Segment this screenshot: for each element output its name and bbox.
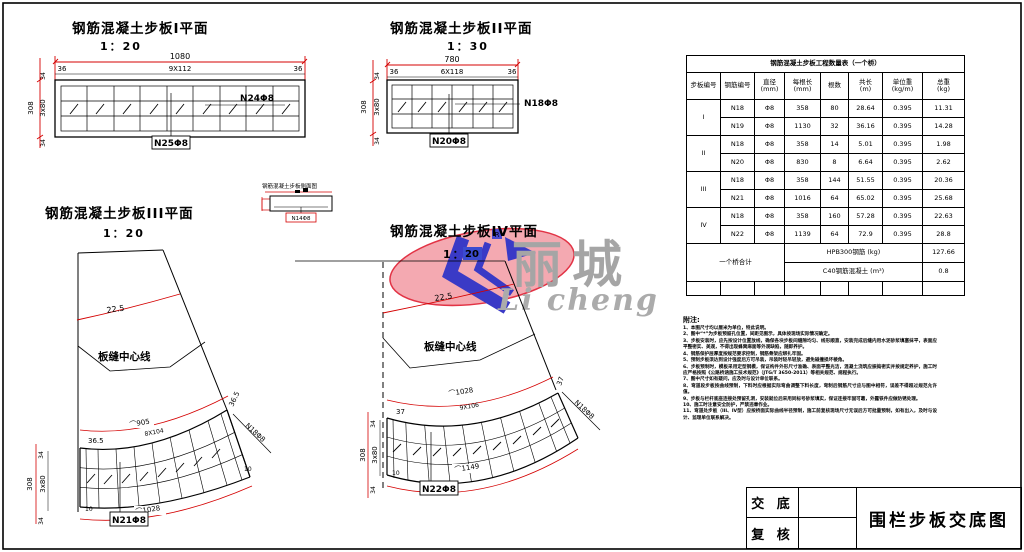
table-row: IV N18Φ8 358160 57.280.395 22.63 (687, 208, 965, 226)
plan4-title: 钢筋混凝土步板IV平面 (390, 223, 538, 240)
logo-name-en: Li cheng (497, 283, 659, 318)
plan3-edge-bottom: 34 (38, 517, 45, 525)
plan2-scale: 1：30 (447, 40, 489, 53)
plan3-fan-outline (78, 250, 250, 512)
drawing-sheet: R 丽城 Li cheng 钢筋混凝土步板I平面 1：20 1080 36 9X… (0, 0, 1024, 552)
note-item: 11、弯道处步板（III、IV型）应按桥面实际曲线半径预制，施工前复核现场尺寸无… (683, 409, 937, 422)
field-jiaodi-value (799, 488, 857, 518)
note-item: 3、步板安装时，应先按设计位置放线，确保各块步板间缝隙均匀、线形顺直，安装完成后… (683, 339, 937, 352)
plan3-angle: 22.5 (106, 304, 125, 315)
field-fuhe-label: 复 核 (747, 518, 799, 548)
plan4-bar-label-right: N18Φ8 (573, 399, 596, 421)
plan3-bar-label-right: N18Φ8 (244, 422, 267, 444)
table-title: 钢筋混凝土步板工程数量表（一个桥） (687, 56, 965, 73)
table-row: N21Φ8 101664 65.020.395 25.68 (687, 190, 965, 208)
table-summary-row: 一个桥合计 HPB300钢筋 (kg) 127.66 (687, 244, 965, 263)
plan2-edge-bottom: 34 (374, 137, 381, 145)
title-block: 交 底 围栏步板交底图 复 核 (746, 487, 1022, 549)
plan1-rows-dim: 3x80 (39, 99, 47, 117)
table-row: I N18Φ8 35880 28.640.395 11.31 (687, 100, 965, 118)
plan4-margin-left: 37 (396, 408, 405, 416)
plan2-spacing: 6X118 (441, 68, 464, 76)
plan2-edge-top: 34 (374, 72, 381, 80)
plan3-edge-left: 10 (85, 506, 93, 513)
plan3-margin-left: 36.5 (88, 437, 104, 445)
plan4-edge-bottom: 34 (370, 486, 377, 494)
plan4-spacing-dim: 9X106 (459, 402, 479, 412)
plan2: 钢筋混凝土步板II平面 1：30 780 36 6X118 36 308 3x8… (360, 20, 558, 147)
plan1-spacing: 9X112 (169, 65, 192, 73)
plan3-height-dim: 308 (26, 477, 34, 490)
plan3: 钢筋混凝土步板III平面 1：20 22.5 板缝中心线 (26, 205, 271, 526)
quantity-table: 钢筋混凝土步板工程数量表（一个桥） 步板编号 钢筋编号 直径(mm) 每根长(m… (686, 55, 965, 296)
plan1-edge-top: 34 (40, 72, 47, 80)
table-header-row: 步板编号 钢筋编号 直径(mm) 每根长(mm) 根数 共长(m) 单位重(kg… (687, 73, 965, 100)
plan3-rows-dim: 3x80 (39, 475, 47, 493)
table-empty-row (687, 282, 965, 296)
table-row: II N18Φ8 35814 5.010.395 1.98 (687, 136, 965, 154)
plan4-scale-value: 20 (465, 249, 479, 260)
plan4-rows-dim: 3x80 (371, 446, 379, 464)
plan4-seam-label: 板缝中心线 (424, 340, 477, 353)
table-row: N19Φ8 113032 36.160.395 14.28 (687, 118, 965, 136)
field-jiaodi-label: 交 底 (747, 488, 799, 518)
plan1-margin-right: 36 (294, 65, 303, 73)
plan3-scale: 1：20 (103, 227, 145, 240)
plan3-edge-right: 10 (244, 466, 252, 473)
plan4-edge-top: 34 (370, 420, 377, 428)
note-item: 8、弯道段步板按曲线预制，下料时应根据实际弯曲调整下料长度，弯制后钢筋尺寸应与图… (683, 384, 937, 397)
field-fuhe-value (799, 518, 857, 548)
table-row: N20Φ8 8308 6.640.395 2.62 (687, 154, 965, 172)
plan3-title: 钢筋混凝土步板III平面 (45, 205, 194, 222)
plan1: 钢筋混凝土步板I平面 1：20 1080 36 9X112 36 308 3x8… (27, 20, 307, 149)
plan2-rows-dim: 3x80 (373, 98, 381, 116)
drawing-title: 围栏步板交底图 (857, 488, 1021, 548)
plan1-title: 钢筋混凝土步板I平面 (72, 20, 209, 37)
plan4-scale-prefix: 1： (443, 248, 466, 261)
plan2-bar-label-right: N18Φ8 (524, 99, 558, 109)
plan2-height-dim: 308 (360, 100, 368, 113)
plan3-bar-label-bottom: N21Φ8 (112, 516, 146, 526)
table-row: N22Φ8 113964 72.90.395 28.8 (687, 226, 965, 244)
detail-bar-label: N14Φ8 (292, 216, 311, 222)
plan3-edge-top: 34 (38, 451, 45, 459)
plan2-margin-right: 36 (508, 68, 517, 76)
plan1-bar-label-right: N24Φ8 (240, 94, 274, 104)
table-row: III N18Φ8 358144 51.550.395 20.36 (687, 172, 965, 190)
plan3-spacing-dim: 8X104 (144, 427, 165, 438)
plan1-width-dim: 1080 (170, 52, 190, 61)
detail-title: 钢筋混凝土步板侧面图 (262, 182, 318, 190)
plan4-bar-label-bottom: N22Φ8 (422, 485, 456, 495)
plan2-bar-label-bottom: N20Φ8 (432, 137, 466, 147)
detail-view: 钢筋混凝土步板侧面图 N14Φ8 (262, 182, 332, 222)
plan1-bar-label-bottom: N25Φ8 (154, 139, 188, 149)
plan2-bar-ticks (398, 102, 507, 112)
plan2-margin-left: 36 (390, 68, 399, 76)
plan1-bar-ticks (70, 104, 290, 114)
plan1-edge-bottom: 34 (40, 139, 47, 147)
plan4-edge-left: 10 (392, 470, 400, 477)
notes-heading: 附注: (683, 315, 937, 325)
plan1-scale: 1：20 (100, 40, 142, 53)
plan4-height-dim: 308 (359, 448, 367, 461)
plan1-height-dim: 308 (27, 101, 35, 114)
notes-block: 附注: 1、本图尺寸均以厘米为单位，特此说明。 2、图中“*”为步板预留孔位置，… (683, 315, 937, 422)
plan3-band (80, 410, 250, 508)
plan2-title: 钢筋混凝土步板II平面 (390, 20, 533, 37)
note-item: 6、步板预制时，模板采用定型钢模，保证构件外形尺寸准确、表面平整光洁，混凝土浇筑… (683, 365, 937, 378)
summary-label: 一个桥合计 (687, 244, 785, 282)
plan3-seam-label: 板缝中心线 (98, 350, 151, 363)
plan4-margin-right: 37 (555, 376, 566, 387)
plan2-width-dim: 780 (444, 55, 459, 64)
plan1-margin-left: 36 (58, 65, 67, 73)
plan3-margin-right: 36.5 (228, 390, 242, 408)
